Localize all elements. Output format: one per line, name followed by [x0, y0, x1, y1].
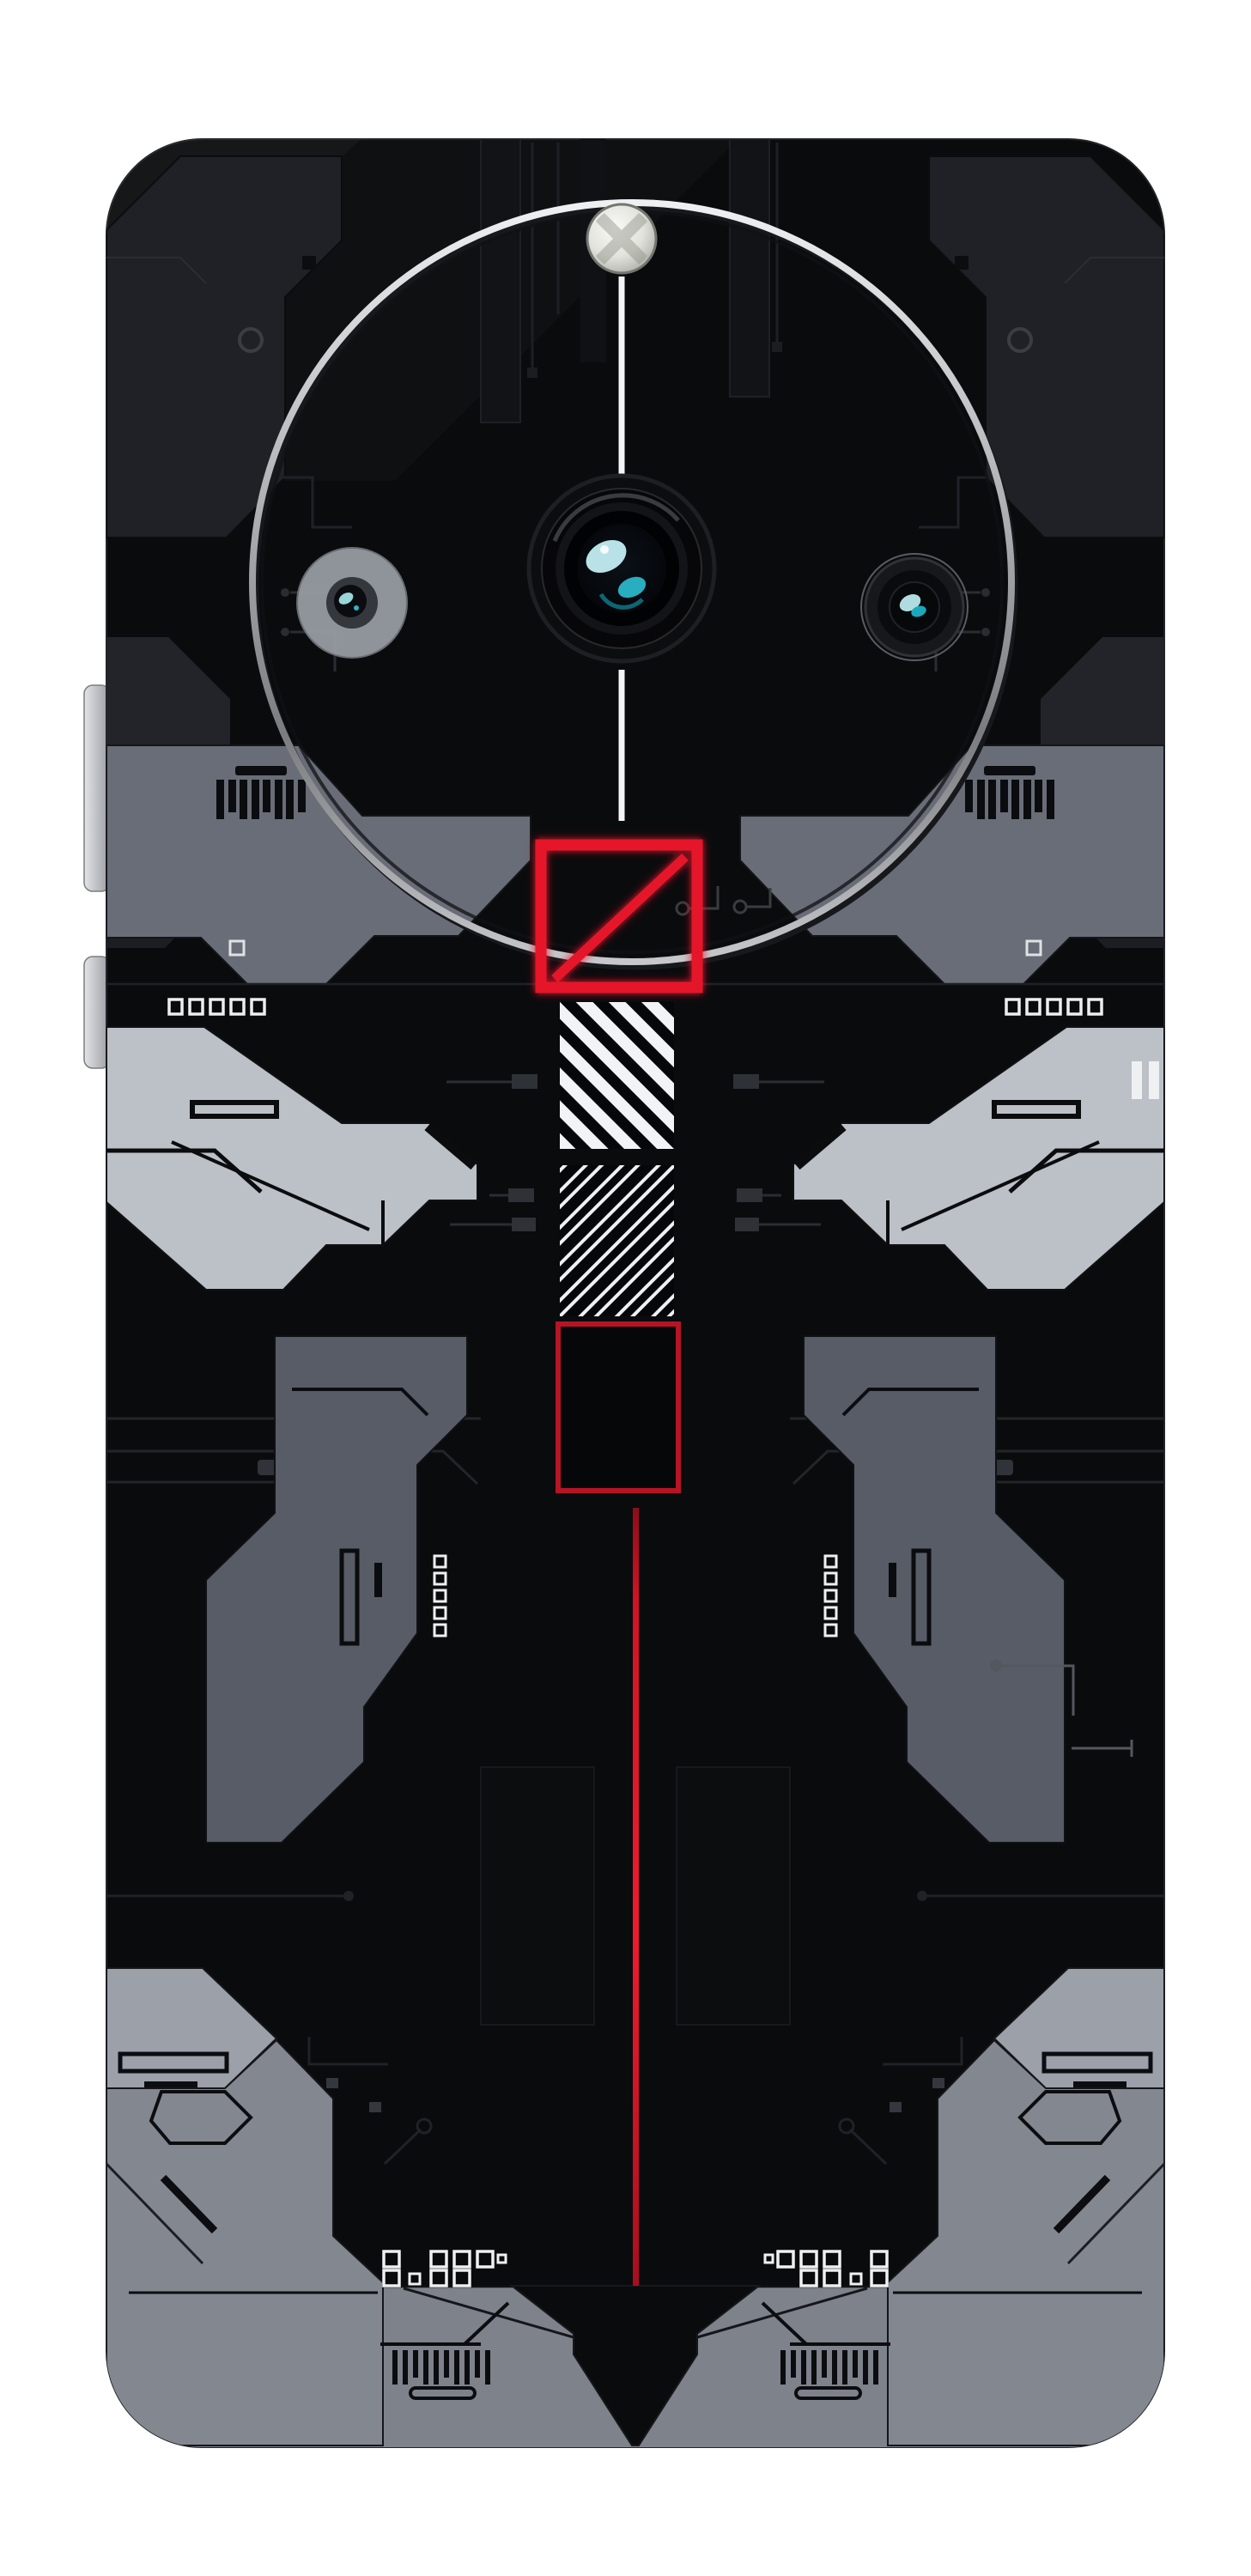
phone-skin-product-photo [0, 0, 1251, 2576]
red-empty-square [558, 1324, 678, 1491]
right-telephoto-lens [861, 554, 968, 660]
red-vertical-line [633, 1508, 639, 2286]
hatch-box-outline [560, 1165, 674, 1316]
phone-skin-render [0, 0, 1251, 2576]
main-lens [529, 476, 714, 661]
hatch-box-solid [560, 1002, 674, 1149]
left-depth-lens [297, 548, 407, 658]
